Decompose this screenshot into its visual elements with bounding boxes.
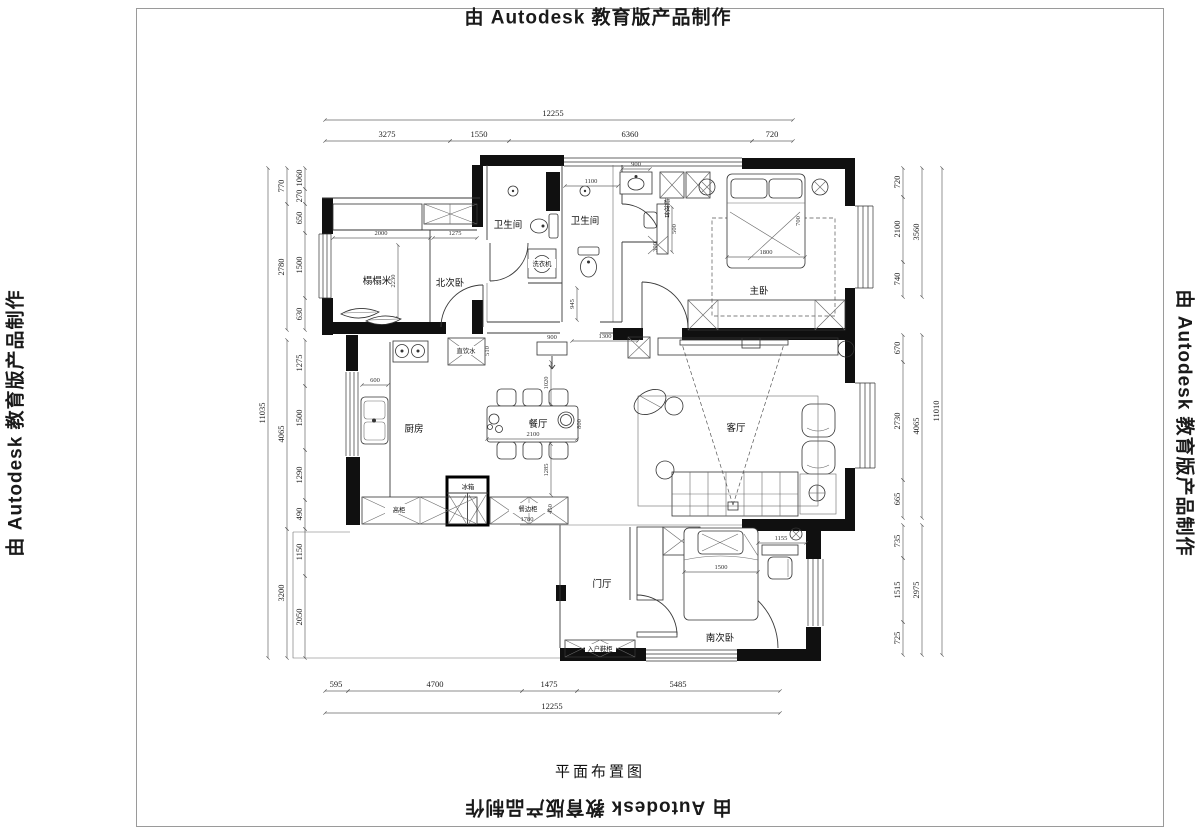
dim-label: 800	[576, 419, 583, 429]
media-cabinet	[628, 337, 650, 358]
dim-label: 1275	[294, 355, 304, 372]
dim-label: 1800	[760, 249, 773, 256]
dim-label: 2780	[276, 259, 286, 276]
room-label-south-bedroom: 南次卧	[706, 632, 735, 644]
dim-label: 11010	[931, 401, 941, 422]
room-label-hall: 门厅	[592, 578, 612, 590]
dim-label: 1275	[449, 230, 462, 237]
dim-label: 2100	[527, 431, 540, 438]
dim-label: 945	[569, 299, 576, 309]
label-water-point: 直饮水	[457, 346, 477, 355]
dim-label: 1500	[715, 564, 728, 571]
label-washing-machine: 洗衣机	[533, 259, 553, 268]
south-bed	[684, 528, 758, 620]
dim-label: 300	[652, 242, 659, 252]
desk-chair	[762, 545, 798, 579]
dim-label: 2730	[892, 413, 902, 430]
label-dressing-table: 梳妆台	[663, 197, 670, 219]
window-south-bottom	[646, 650, 737, 661]
dim-label: 700	[795, 216, 802, 226]
dim-label: 3200	[276, 585, 286, 602]
toilet-bath1	[531, 214, 559, 238]
dim-label: 720	[892, 176, 902, 189]
dim-label: 720	[766, 129, 779, 139]
dim-label: 1515	[892, 582, 902, 599]
dim-label: 1100	[585, 178, 598, 185]
floor-lamp	[656, 461, 674, 479]
dim-label: 770	[276, 180, 286, 193]
dim-label: 12255	[542, 108, 563, 118]
stove	[393, 341, 428, 362]
closet-north	[424, 204, 477, 224]
dim-label: 600	[370, 377, 380, 384]
armchair-2	[802, 441, 835, 474]
dim-label: 1285	[543, 464, 550, 477]
dim-label: 630	[294, 308, 304, 321]
dim-label: 1020	[543, 377, 550, 390]
room-label-bath1: 卫生间	[494, 219, 523, 231]
dim-label: 2100	[892, 221, 902, 238]
dim-label: 900	[631, 161, 641, 168]
tatami-storage	[333, 204, 422, 230]
sofa	[672, 472, 798, 516]
dim-label: 500	[671, 224, 678, 234]
dim-label: 1500	[294, 257, 304, 274]
south-wardrobe	[637, 527, 663, 600]
dim-label: 650	[294, 212, 304, 225]
dim-label: 1550	[471, 129, 488, 139]
armchair	[802, 404, 835, 437]
dim-label: 740	[892, 273, 902, 286]
toilet-bath2	[578, 247, 599, 277]
dim-label: 3560	[911, 224, 921, 241]
tall-cabinet	[362, 497, 477, 524]
dim-label: 2975	[911, 582, 921, 599]
dim-label: 270	[294, 190, 304, 203]
dim-label: 11035	[257, 403, 267, 424]
dim-label: 1780	[521, 516, 534, 523]
master-wardrobe	[688, 300, 845, 330]
dim-label: 1290	[294, 467, 304, 484]
room-label-kitchen: 厨房	[404, 423, 423, 435]
room-label-bath2: 卫生间	[571, 215, 600, 227]
room-label-north-bedroom: 北次卧	[436, 277, 465, 289]
dim-label: 510	[484, 346, 491, 356]
kitchen-sink	[361, 397, 388, 444]
dim-label: 5485	[670, 679, 687, 689]
dim-label: 2050	[294, 609, 304, 626]
shower-head-icon-2	[580, 186, 590, 196]
dim-label: 670	[892, 342, 902, 355]
room-label-tatami: 榻榻米	[363, 275, 392, 287]
door-bath1	[490, 243, 528, 281]
nightstand	[660, 172, 684, 198]
vanity-basin	[620, 172, 652, 194]
label-sideboard: 餐边柜	[519, 504, 538, 513]
room-label-dining: 餐厅	[528, 418, 548, 430]
dim-label: 12255	[541, 701, 562, 711]
dim-label: 4065	[276, 426, 286, 443]
room-label-master-bedroom: 主卧	[749, 285, 769, 297]
dim-label: 725	[892, 632, 902, 645]
dim-label: 735	[892, 535, 902, 548]
label-shoe-cabinet: 入户鞋柜	[587, 644, 612, 653]
dim-label: 1060	[294, 170, 304, 187]
dim-label: 1475	[541, 679, 558, 689]
ceiling-lamp-icon-2	[812, 179, 828, 195]
dim-label: 2000	[375, 230, 388, 237]
dim-label: 900	[547, 334, 557, 341]
window-north-left	[319, 234, 331, 298]
floor-plan: 12255 3275 1550 6360 720 595 4700 1475 5…	[0, 0, 1200, 833]
dim-label: 3275	[379, 129, 396, 139]
ceiling-lamp-icon	[699, 179, 715, 195]
dim-label: 1300	[599, 333, 612, 340]
shower-head-icon	[508, 186, 518, 196]
window-living-bay	[855, 383, 875, 468]
window-kitchen-left	[346, 372, 358, 456]
dim-label: 1150	[294, 544, 304, 561]
nightstand-2	[686, 172, 710, 198]
room-label-living: 客厅	[726, 422, 746, 434]
window-south-bay	[808, 559, 823, 626]
dim-label: 450	[547, 504, 554, 514]
dim-label: 1500	[294, 410, 304, 427]
dim-label: 4065	[911, 418, 921, 435]
dim-label: 595	[330, 679, 343, 689]
door-master-bedroom	[642, 282, 688, 328]
label-tall-cabinet: 高柜	[393, 505, 406, 514]
window-master-bay	[855, 206, 873, 288]
dim-label: 1155	[775, 535, 788, 542]
hall-cabinet	[537, 342, 567, 369]
door-bath2	[622, 204, 660, 242]
dim-label: 665	[892, 493, 902, 506]
dim-label: 4700	[427, 679, 444, 689]
dim-label: 490	[294, 508, 304, 521]
label-fridge: 冰箱	[462, 482, 475, 491]
door-entry	[637, 595, 677, 637]
dim-label: 6360	[622, 129, 639, 139]
window-top-corridor	[564, 158, 742, 166]
